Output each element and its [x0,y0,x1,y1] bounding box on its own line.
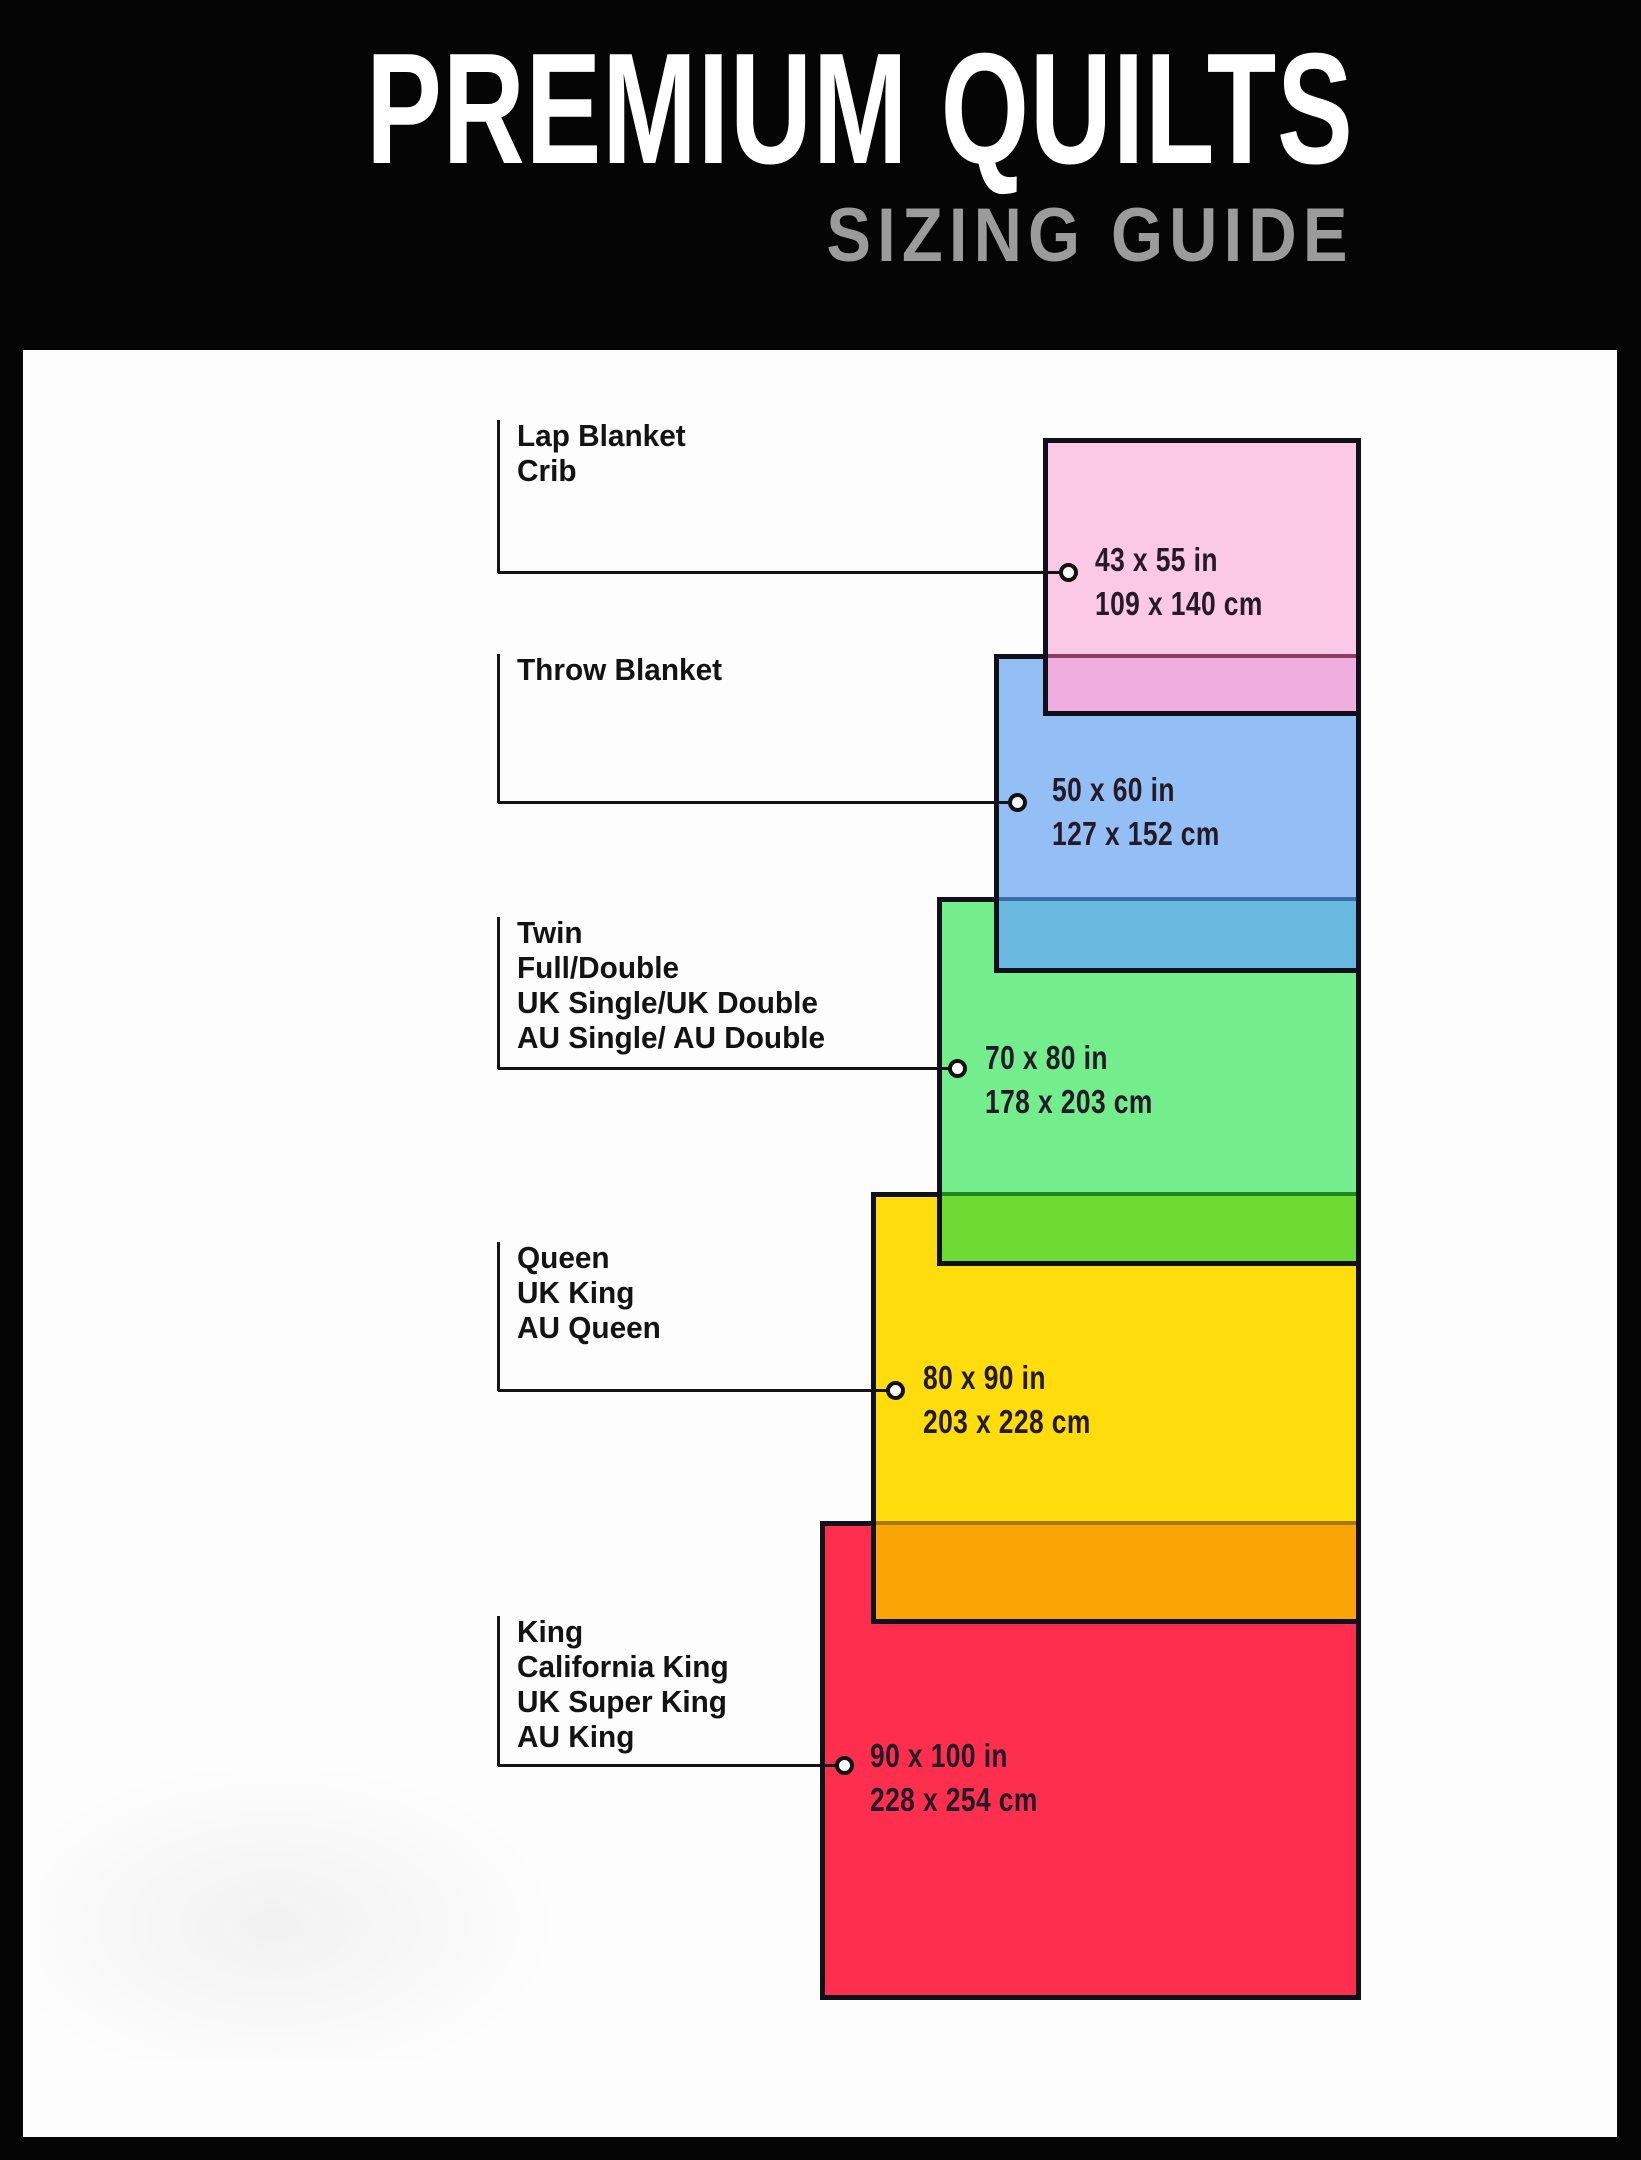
dimensions-king: 90 x 100 in228 x 254 cm [870,1734,1080,1822]
dimensions-cm: 203 x 228 cm [923,1400,1091,1444]
overlapped-border-line-queen [876,1521,1356,1525]
overlap-region-queen [876,1521,1356,1619]
size-label-queen: QueenUK KingAU Queen [517,1240,667,1345]
connector-dot-king [835,1756,854,1775]
label-tick-line-queen [497,1242,500,1391]
label-tick-line-lap-blanket-crib [497,420,500,573]
overlap-region-lap-blanket-crib [1048,654,1356,711]
overlapped-border-line-lap-blanket-crib [1048,654,1356,658]
connector-dot-throw-blanket [1008,793,1027,812]
size-label-line: Crib [517,453,686,488]
dimensions-cm: 127 x 152 cm [1052,812,1220,856]
dimensions-lap-blanket-crib: 43 x 55 in109 x 140 cm [1095,538,1305,626]
size-label-line: King [517,1614,729,1649]
page-subtitle: SIZING GUIDE [147,198,1354,274]
connector-line-throw-blanket [498,801,1011,804]
page-title: PREMIUM QUILTS [366,30,1354,188]
size-label-line: Full/Double [517,950,825,985]
size-label-twin-full-double: TwinFull/DoubleUK Single/UK DoubleAU Sin… [517,915,838,1055]
connector-line-king [498,1764,838,1767]
connector-dot-twin-full-double [948,1059,967,1078]
size-label-line: AU Queen [517,1310,661,1345]
dimensions-queen: 80 x 90 in203 x 228 cm [923,1356,1133,1444]
dimensions-cm: 178 x 203 cm [985,1080,1153,1124]
size-label-line: UK Super King [517,1684,729,1719]
size-label-king: KingCalifornia KingUK Super KingAU King [517,1614,737,1754]
size-label-line: UK Single/UK Double [517,985,825,1020]
dimensions-twin-full-double: 70 x 80 in178 x 203 cm [985,1036,1195,1124]
label-tick-line-throw-blanket [497,654,500,803]
overlap-region-throw-blanket [999,897,1356,968]
size-label-line: California King [517,1649,729,1684]
connector-dot-lap-blanket-crib [1059,563,1078,582]
connector-line-queen [498,1389,889,1392]
dimensions-throw-blanket: 50 x 60 in127 x 152 cm [1052,768,1262,856]
label-tick-line-twin-full-double [497,917,500,1069]
paper-shadow-artifact [40,1760,560,2060]
dimensions-inches: 70 x 80 in [985,1036,1153,1080]
size-label-line: AU King [517,1719,729,1754]
dimensions-cm: 228 x 254 cm [870,1778,1038,1822]
overlapped-border-line-twin-full-double [942,1192,1356,1196]
dimensions-inches: 80 x 90 in [923,1356,1091,1400]
size-label-line: Twin [517,915,825,950]
size-label-line: UK King [517,1275,661,1310]
size-label-line: Throw Blanket [517,652,722,687]
dimensions-inches: 43 x 55 in [1095,538,1263,582]
connector-line-lap-blanket-crib [498,571,1062,574]
connector-dot-queen [886,1381,905,1400]
infographic-page: PREMIUM QUILTS SIZING GUIDE Lap BlanketC… [0,0,1641,2160]
size-label-line: Lap Blanket [517,418,686,453]
connector-line-twin-full-double [498,1067,951,1070]
size-label-lap-blanket-crib: Lap BlanketCrib [517,418,693,488]
dimensions-inches: 50 x 60 in [1052,768,1220,812]
size-label-line: AU Single/ AU Double [517,1020,825,1055]
header: PREMIUM QUILTS SIZING GUIDE [0,30,1354,274]
dimensions-inches: 90 x 100 in [870,1734,1038,1778]
size-label-throw-blanket: Throw Blanket [517,652,731,687]
overlap-region-twin-full-double [942,1192,1356,1261]
dimensions-cm: 109 x 140 cm [1095,582,1263,626]
size-label-line: Queen [517,1240,661,1275]
label-tick-line-king [497,1616,500,1766]
overlapped-border-line-throw-blanket [999,897,1356,901]
